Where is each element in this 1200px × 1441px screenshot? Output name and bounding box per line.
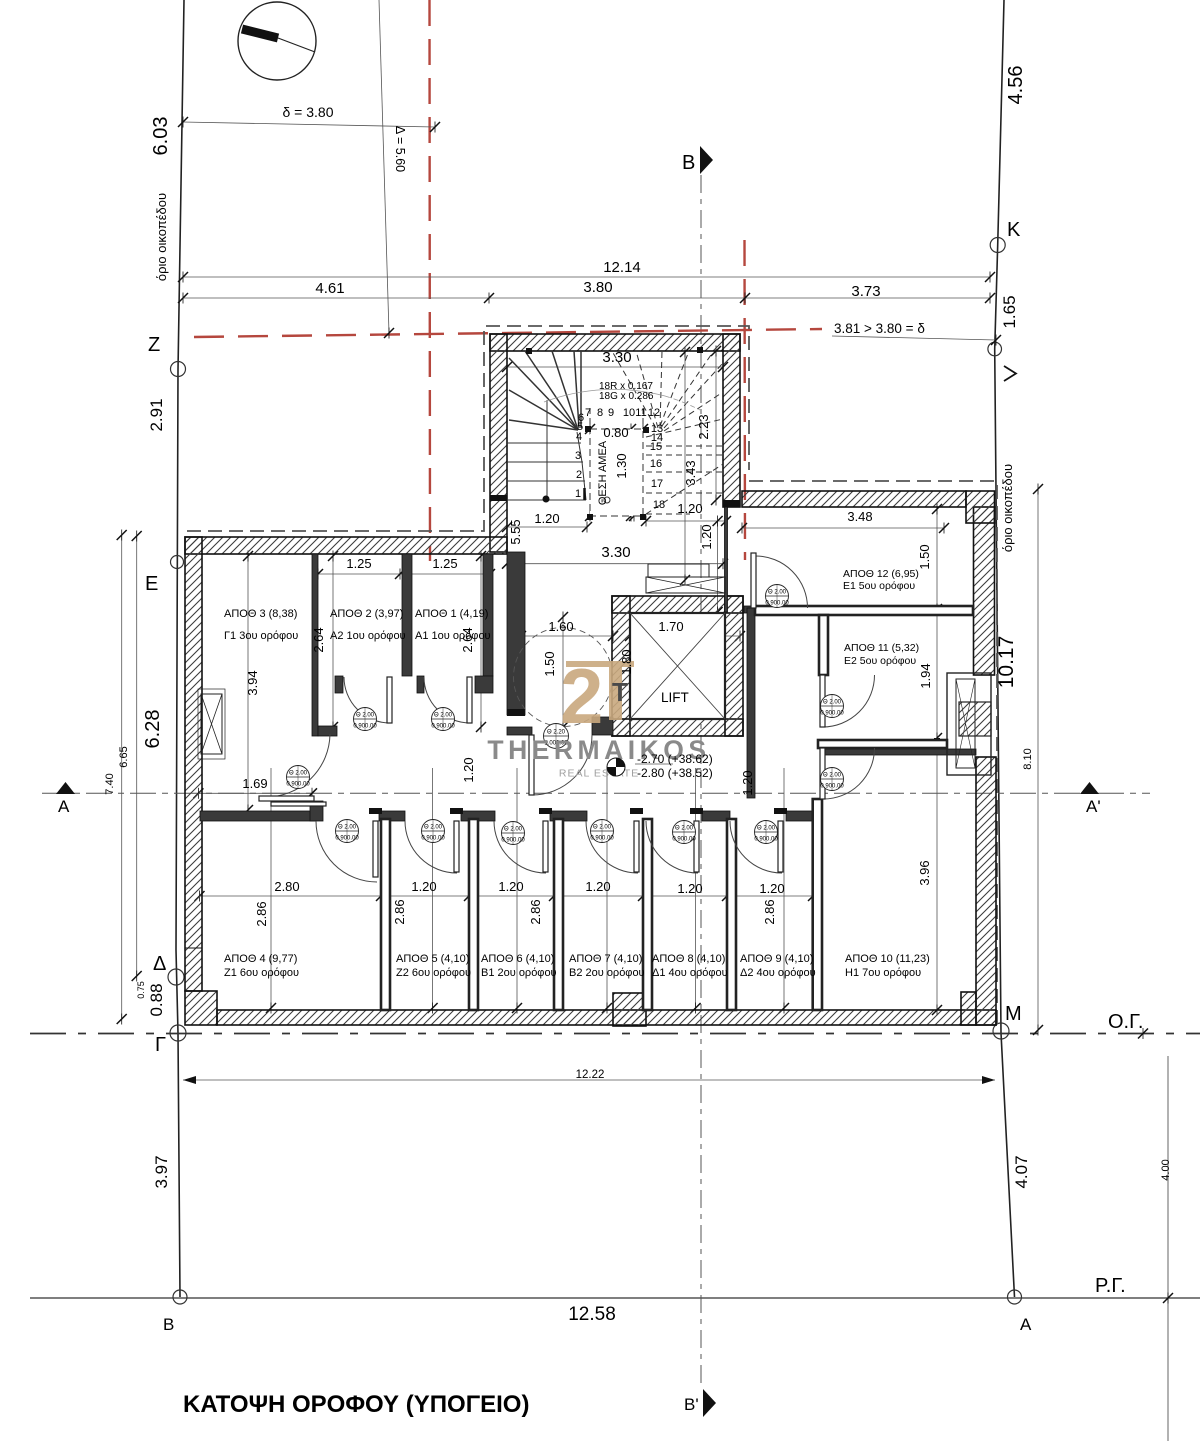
svg-text:1.20: 1.20 xyxy=(498,879,523,894)
svg-text:3.30: 3.30 xyxy=(601,544,630,561)
svg-text:2.86: 2.86 xyxy=(392,899,407,924)
svg-text:7: 7 xyxy=(585,407,591,419)
svg-text:M: M xyxy=(1005,1003,1022,1025)
svg-text:4.00: 4.00 xyxy=(1160,1159,1172,1180)
svg-text:ΑΠΟΘ 7 (4,10): ΑΠΟΘ 7 (4,10) xyxy=(569,953,642,965)
svg-text:1.20: 1.20 xyxy=(699,524,714,549)
svg-text:2.86: 2.86 xyxy=(762,899,777,924)
svg-text:Γ1 3ου ορόφου: Γ1 3ου ορόφου xyxy=(224,630,298,642)
svg-text:5.55: 5.55 xyxy=(508,519,523,544)
svg-text:Α1 1ου ορόφου: Α1 1ου ορόφου xyxy=(415,630,491,642)
svg-text:Η1 7ου ορόφου: Η1 7ου ορόφου xyxy=(845,967,921,979)
svg-text:3.30: 3.30 xyxy=(602,349,631,366)
svg-text:6.65: 6.65 xyxy=(118,746,130,767)
svg-text:-2.80 (+38.52): -2.80 (+38.52) xyxy=(637,766,713,780)
svg-text:11: 11 xyxy=(635,407,646,419)
svg-text:1.60: 1.60 xyxy=(548,619,573,634)
svg-text:Ε1 5ου ορόφου: Ε1 5ου ορόφου xyxy=(843,580,915,592)
svg-text:3.81 > 3.80 = δ: 3.81 > 3.80 = δ xyxy=(834,321,925,336)
svg-text:1.70: 1.70 xyxy=(658,619,683,634)
svg-text:REAL ESTATE: REAL ESTATE xyxy=(559,768,639,780)
svg-text:2: 2 xyxy=(560,652,603,740)
svg-text:6.28: 6.28 xyxy=(142,710,164,749)
svg-text:Β2 2ου ορόφου: Β2 2ου ορόφου xyxy=(569,967,645,979)
svg-text:1.65: 1.65 xyxy=(1000,295,1019,328)
svg-text:1.20: 1.20 xyxy=(461,757,476,782)
svg-text:1.20: 1.20 xyxy=(411,879,436,894)
svg-text:A': A' xyxy=(1086,797,1101,816)
svg-text:ΚΑΤΟΨΗ ΟΡΟΦΟΥ (ΥΠΟΓΕΙΟ): ΚΑΤΟΨΗ ΟΡΟΦΟΥ (ΥΠΟΓΕΙΟ) xyxy=(183,1391,529,1418)
svg-text:ΑΠΟΘ 1 (4,19): ΑΠΟΘ 1 (4,19) xyxy=(415,608,488,620)
svg-text:δ = 3.80: δ = 3.80 xyxy=(283,104,334,120)
svg-text:1.80: 1.80 xyxy=(619,649,634,674)
svg-text:2: 2 xyxy=(576,469,582,481)
svg-text:2.86: 2.86 xyxy=(254,901,269,926)
svg-text:18: 18 xyxy=(653,499,665,511)
svg-text:1.20: 1.20 xyxy=(534,511,559,526)
svg-text:2.64: 2.64 xyxy=(460,627,475,652)
svg-text:9: 9 xyxy=(608,407,614,419)
svg-text:2.80: 2.80 xyxy=(274,879,299,894)
svg-text:4.61: 4.61 xyxy=(315,280,344,297)
svg-text:T: T xyxy=(612,677,628,707)
svg-text:1.69: 1.69 xyxy=(242,776,267,791)
svg-text:3: 3 xyxy=(575,450,581,462)
svg-text:1.25: 1.25 xyxy=(432,556,457,571)
svg-text:1.20: 1.20 xyxy=(759,881,784,896)
svg-text:Ο.Γ.: Ο.Γ. xyxy=(1108,1011,1144,1033)
svg-text:12: 12 xyxy=(648,407,660,419)
svg-text:12.14: 12.14 xyxy=(603,259,641,276)
svg-text:3.48: 3.48 xyxy=(847,509,872,524)
svg-text:όριο οικοπέδου: όριο οικοπέδου xyxy=(154,193,169,281)
svg-text:ΑΠΟΘ 10 (11,23): ΑΠΟΘ 10 (11,23) xyxy=(845,953,930,965)
svg-text:Ρ.Γ.: Ρ.Γ. xyxy=(1095,1275,1126,1297)
svg-text:Δ = 5.60: Δ = 5.60 xyxy=(393,126,407,172)
svg-text:7.40: 7.40 xyxy=(104,773,116,794)
svg-text:6.03: 6.03 xyxy=(150,117,172,156)
svg-text:K: K xyxy=(1007,219,1021,241)
svg-text:0.80: 0.80 xyxy=(603,425,628,440)
svg-text:3.97: 3.97 xyxy=(152,1155,171,1188)
svg-text:1: 1 xyxy=(575,488,581,500)
svg-text:LIFT: LIFT xyxy=(661,690,689,705)
svg-text:ΑΠΟΘ 3 (8,38): ΑΠΟΘ 3 (8,38) xyxy=(224,608,297,620)
svg-text:ΑΠΟΘ 2 (3,97): ΑΠΟΘ 2 (3,97) xyxy=(330,608,403,620)
svg-text:0.88: 0.88 xyxy=(147,983,166,1016)
svg-text:2.23: 2.23 xyxy=(696,414,711,439)
svg-text:Ζ2 6ου ορόφου: Ζ2 6ου ορόφου xyxy=(396,967,471,979)
svg-text:8.10: 8.10 xyxy=(1022,748,1034,769)
svg-text:12.58: 12.58 xyxy=(568,1304,616,1325)
svg-text:8: 8 xyxy=(597,407,603,419)
svg-text:Β: Β xyxy=(682,152,695,174)
svg-text:A: A xyxy=(1020,1315,1032,1334)
svg-text:Ζ1 6ου ορόφου: Ζ1 6ου ορόφου xyxy=(224,967,299,979)
svg-text:Δ1 4ου ορόφου: Δ1 4ου ορόφου xyxy=(652,967,728,979)
svg-text:15: 15 xyxy=(650,441,662,453)
svg-text:ΘΕΣΗ ΑΜΕΑ: ΘΕΣΗ ΑΜΕΑ xyxy=(597,440,609,505)
svg-text:1.30: 1.30 xyxy=(614,453,629,478)
svg-text:4.07: 4.07 xyxy=(1012,1155,1031,1188)
svg-text:2.86: 2.86 xyxy=(528,899,543,924)
svg-text:1.20: 1.20 xyxy=(677,501,702,516)
svg-text:Γ: Γ xyxy=(155,1034,166,1056)
svg-text:1.20: 1.20 xyxy=(740,770,755,795)
svg-text:2.91: 2.91 xyxy=(147,398,166,431)
svg-text:ΑΠΟΘ 12 (6,95): ΑΠΟΘ 12 (6,95) xyxy=(843,568,919,580)
svg-text:ΑΠΟΘ 5 (4,10): ΑΠΟΘ 5 (4,10) xyxy=(396,953,469,965)
svg-text:Β: Β xyxy=(163,1315,174,1334)
svg-text:1.20: 1.20 xyxy=(677,881,702,896)
svg-text:Δ: Δ xyxy=(153,953,166,975)
svg-text:ΑΠΟΘ 9 (4,10): ΑΠΟΘ 9 (4,10) xyxy=(740,953,813,965)
svg-text:1.25: 1.25 xyxy=(346,556,371,571)
svg-text:Ε2 5ου ορόφου: Ε2 5ου ορόφου xyxy=(844,655,916,667)
svg-text:10: 10 xyxy=(623,407,635,419)
svg-text:1.20: 1.20 xyxy=(585,879,610,894)
svg-text:12.22: 12.22 xyxy=(576,1069,605,1081)
svg-text:2.64: 2.64 xyxy=(311,627,326,652)
svg-text:18G x 0.286: 18G x 0.286 xyxy=(599,391,654,402)
svg-text:-2.70 (+38.62): -2.70 (+38.62) xyxy=(637,752,713,766)
svg-text:3.73: 3.73 xyxy=(851,283,880,300)
svg-text:6: 6 xyxy=(578,412,584,424)
svg-text:A: A xyxy=(58,797,70,816)
svg-text:Β1 2ου ορόφου: Β1 2ου ορόφου xyxy=(481,967,557,979)
svg-text:3.96: 3.96 xyxy=(917,860,932,885)
svg-text:ΑΠΟΘ 6 (4,10): ΑΠΟΘ 6 (4,10) xyxy=(481,953,554,965)
svg-text:10.17: 10.17 xyxy=(995,636,1018,689)
svg-text:Α2 1ου ορόφου: Α2 1ου ορόφου xyxy=(330,630,406,642)
svg-text:3.43: 3.43 xyxy=(683,460,698,485)
svg-text:ΑΠΟΘ 4 (9,77): ΑΠΟΘ 4 (9,77) xyxy=(224,953,297,965)
svg-text:E: E xyxy=(145,573,158,595)
svg-text:όριο οικοπέδου: όριο οικοπέδου xyxy=(1000,464,1015,552)
svg-text:17: 17 xyxy=(651,478,663,490)
svg-text:ΑΠΟΘ 11 (5,32): ΑΠΟΘ 11 (5,32) xyxy=(844,642,919,654)
svg-text:1.50: 1.50 xyxy=(917,544,932,569)
svg-text:Δ2 4ου ορόφου: Δ2 4ου ορόφου xyxy=(740,967,816,979)
svg-text:16: 16 xyxy=(650,458,662,470)
svg-text:1.50: 1.50 xyxy=(542,651,557,676)
svg-text:Z: Z xyxy=(148,334,160,356)
svg-text:1.94: 1.94 xyxy=(918,663,933,688)
svg-text:4.56: 4.56 xyxy=(1005,66,1027,105)
svg-text:0.75: 0.75 xyxy=(136,981,146,999)
svg-text:Β': Β' xyxy=(684,1395,699,1414)
svg-text:3.80: 3.80 xyxy=(583,279,612,296)
svg-text:3.94: 3.94 xyxy=(245,670,260,695)
svg-text:ΑΠΟΘ 8 (4,10): ΑΠΟΘ 8 (4,10) xyxy=(652,953,725,965)
